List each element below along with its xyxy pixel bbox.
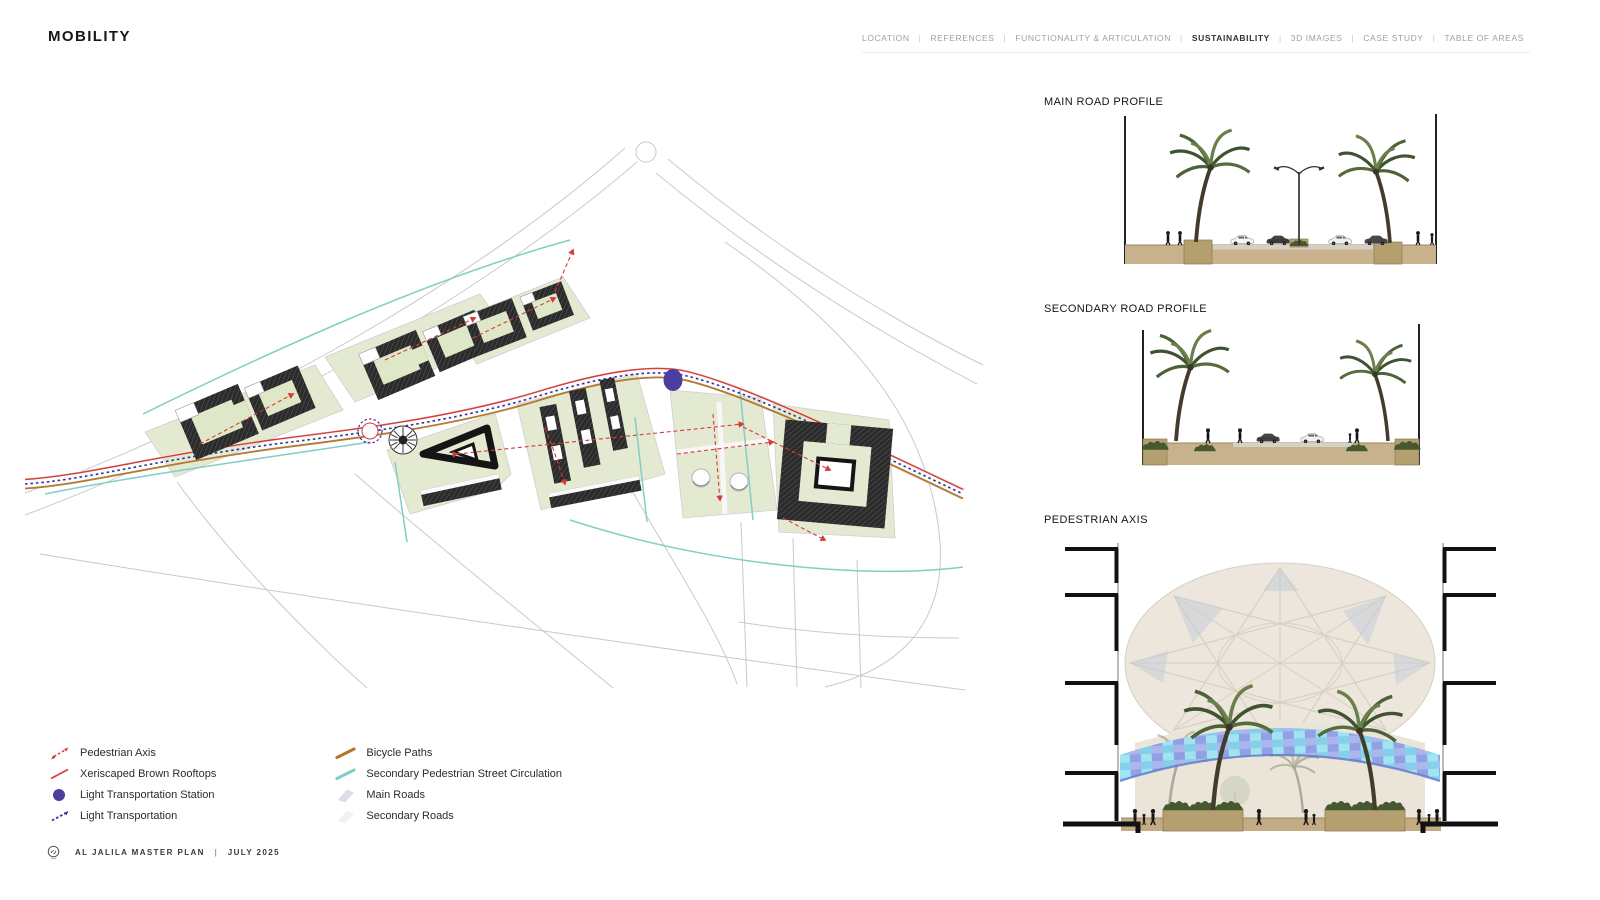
legend-label: Bicycle Paths	[366, 747, 432, 759]
page-title: MOBILITY	[48, 28, 131, 45]
pedestrian-axis-icon	[48, 745, 72, 761]
legend-item-main-roads: Main Roads	[334, 788, 562, 802]
footer: AL JALILA MASTER PLAN | JULY 2025	[46, 845, 280, 860]
legend-label: Secondary Roads	[366, 810, 453, 822]
light-transportation-station-icon	[48, 787, 72, 803]
map-legend: Pedestrian Axis Xeriscaped Brown Rooftop…	[48, 746, 562, 823]
roundabout	[358, 419, 382, 443]
nav-separator: |	[1279, 33, 1282, 43]
legend-item-secondary-roads: Secondary Roads	[334, 809, 562, 823]
footer-date: JULY 2025	[228, 848, 280, 857]
nav-separator: |	[1433, 33, 1436, 43]
secondary-pedestrian-circulation-icon	[334, 766, 358, 782]
footer-separator: |	[214, 848, 218, 857]
xeriscaped-rooftops-icon	[48, 766, 72, 782]
tab-3d-images[interactable]: 3D IMAGES	[1291, 33, 1343, 43]
tab-references[interactable]: REFERENCES	[930, 33, 994, 43]
legend-label: Light Transportation Station	[80, 789, 215, 801]
light-transportation-icon	[48, 808, 72, 824]
tab-functionality-articulation[interactable]: FUNCTIONALITY & ARTICULATION	[1015, 33, 1171, 43]
bicycle-paths-icon	[334, 745, 358, 761]
slide-mobility: MOBILITY LOCATION | REFERENCES | FUNCTIO…	[0, 0, 1600, 900]
footer-project: AL JALILA MASTER PLAN	[75, 848, 205, 857]
tab-table-of-areas[interactable]: TABLE OF AREAS	[1444, 33, 1524, 43]
legend-label: Secondary Pedestrian Street Circulation	[366, 768, 562, 780]
secondary-roads-icon	[334, 808, 358, 824]
logo-icon	[46, 845, 61, 860]
legend-item-light-transportation: Light Transportation	[48, 809, 216, 823]
legend-item-bicycle-paths: Bicycle Paths	[334, 746, 562, 760]
label-secondary-road-profile: SECONDARY ROAD PROFILE	[1044, 303, 1207, 315]
secondary-road-profile-graphic	[1138, 322, 1423, 468]
light-transportation-station-marker	[664, 369, 683, 391]
main-roads-icon	[334, 787, 358, 803]
legend-label: Light Transportation	[80, 810, 177, 822]
nav-separator: |	[1004, 33, 1007, 43]
dome	[1125, 563, 1435, 818]
pedestrian-axis-graphic	[1063, 533, 1498, 833]
tab-location[interactable]: LOCATION	[862, 33, 910, 43]
tab-case-study[interactable]: CASE STUDY	[1363, 33, 1423, 43]
nav-separator: |	[1351, 33, 1354, 43]
tab-sustainability[interactable]: SUSTAINABILITY	[1192, 33, 1270, 43]
legend-item-light-transportation-station: Light Transportation Station	[48, 788, 216, 802]
streetlight	[1274, 167, 1324, 245]
legend-label: Main Roads	[366, 789, 425, 801]
legend-item-xeriscaped-rooftops: Xeriscaped Brown Rooftops	[48, 767, 216, 781]
top-navigation: LOCATION | REFERENCES | FUNCTIONALITY & …	[862, 33, 1530, 53]
label-pedestrian-axis: PEDESTRIAN AXIS	[1044, 514, 1148, 526]
master-plan-site-map	[25, 122, 985, 730]
legend-item-pedestrian-axis: Pedestrian Axis	[48, 746, 216, 760]
label-main-road-profile: MAIN ROAD PROFILE	[1044, 96, 1163, 108]
legend-item-secondary-pedestrian: Secondary Pedestrian Street Circulation	[334, 767, 562, 781]
building-section-right	[1423, 543, 1498, 833]
nav-separator: |	[919, 33, 922, 43]
main-road-profile-graphic	[1118, 112, 1443, 267]
legend-label: Xeriscaped Brown Rooftops	[80, 768, 216, 780]
building-section-left	[1063, 543, 1138, 833]
nav-separator: |	[1180, 33, 1183, 43]
legend-label: Pedestrian Axis	[80, 747, 156, 759]
